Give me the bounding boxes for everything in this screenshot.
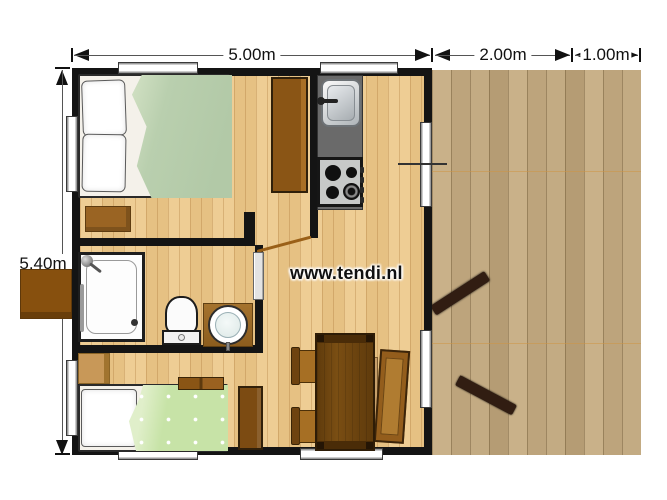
terrace-deck [432, 70, 641, 455]
dim-label-terrace-depth: 2.00m [474, 45, 531, 65]
window-living-right [420, 330, 432, 408]
burner-icon [326, 186, 339, 199]
floor-plan: 5.00m 2.00m 1.00m 5.40m [0, 0, 667, 500]
table-end-rail [317, 335, 373, 343]
dining-table [315, 333, 375, 451]
dim-label-cabin-width: 5.00m [223, 45, 280, 65]
dim-tick [639, 48, 641, 62]
single-bed-duvet [128, 385, 228, 451]
shower-tray-inner [86, 260, 137, 334]
stove-knob [360, 197, 364, 203]
table-end-rail [317, 441, 373, 449]
table-leg-icon [317, 335, 324, 342]
table-leg-icon [317, 442, 324, 449]
dim-tick [431, 48, 433, 62]
wall-bedroom1-bathroom [76, 238, 255, 246]
bench-inner [380, 357, 403, 435]
dim-label-terrace-extension: 1.00m [580, 45, 631, 65]
dim-tick [571, 48, 573, 62]
dim-arrow-right-icon [415, 49, 430, 61]
washbasin [208, 305, 248, 345]
website-watermark: www.tendi.nl [290, 263, 403, 284]
table-leg-icon [366, 335, 373, 342]
shower-rail [80, 284, 84, 332]
pillow [81, 389, 137, 447]
burner-icon [346, 167, 357, 178]
dim-tick [55, 453, 70, 455]
bathroom-door [253, 252, 264, 300]
lounge-chair [433, 375, 517, 456]
burner-icon [325, 165, 341, 181]
gas-stove [317, 157, 363, 207]
headboard-shelf [178, 377, 224, 390]
window-bedroom2-left [66, 360, 78, 436]
wardrobe [271, 77, 308, 193]
lounge-chair-rail [455, 375, 517, 415]
kitchen-sink [321, 79, 361, 127]
stove-knob [360, 187, 364, 193]
stove-knob [360, 177, 364, 183]
sink-basin [327, 85, 355, 121]
front-door-handle [398, 163, 447, 165]
outdoor-storage-box [20, 269, 72, 319]
washbasin-inner [215, 312, 241, 338]
faucet-icon [323, 99, 338, 103]
bedroom2-cabinet [238, 386, 263, 450]
toilet-flush-button-icon [178, 334, 185, 341]
lounge-chair-rail [430, 271, 490, 315]
dim-arrow-right-icon [555, 49, 570, 61]
shower-drain-icon [131, 319, 138, 326]
table-leg-icon [366, 442, 373, 449]
dim-tick [71, 48, 73, 62]
pillow [81, 79, 127, 137]
dim-tick [55, 67, 70, 69]
toilet-bowl [165, 296, 198, 334]
pillow [81, 134, 126, 193]
window-bedroom1-left [66, 116, 78, 192]
bedside-cabinet [78, 353, 110, 384]
wall-door-jamb [244, 212, 255, 246]
window-kitchen-top [320, 62, 398, 74]
stove-knob [360, 167, 364, 173]
window-bedroom1-top [118, 62, 198, 74]
nightstand [85, 206, 131, 232]
burner-icon [343, 183, 360, 200]
deck-seam [432, 171, 641, 172]
basin-tap-icon [226, 342, 230, 351]
